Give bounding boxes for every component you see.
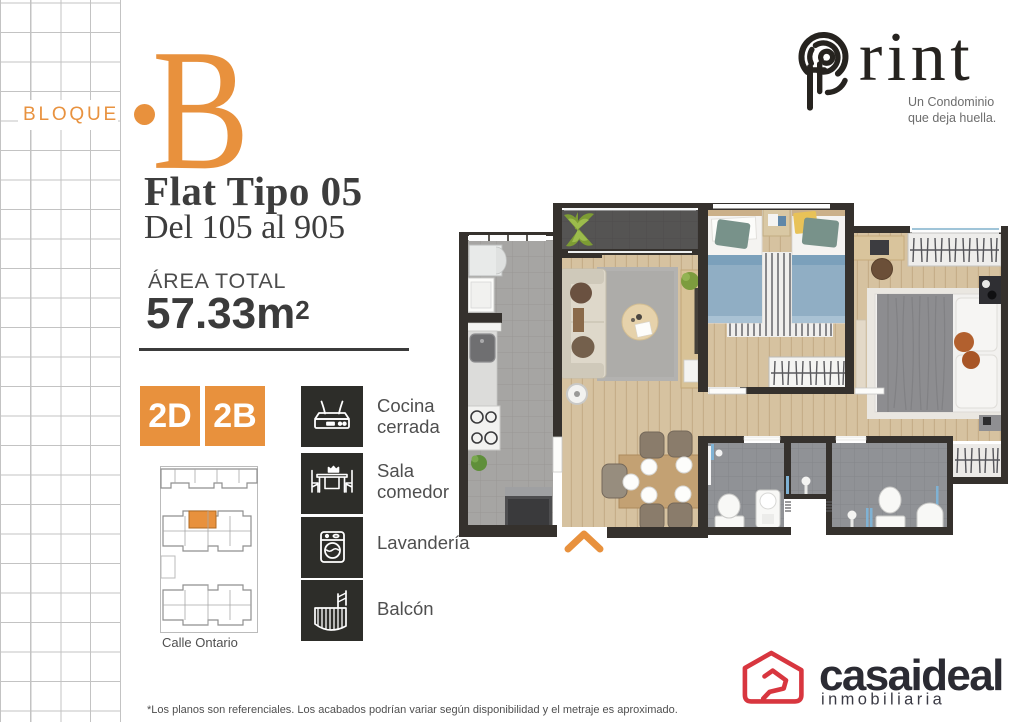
svg-text:rint: rint	[859, 20, 974, 96]
svg-text:inmobiliaria: inmobiliaria	[821, 691, 945, 709]
